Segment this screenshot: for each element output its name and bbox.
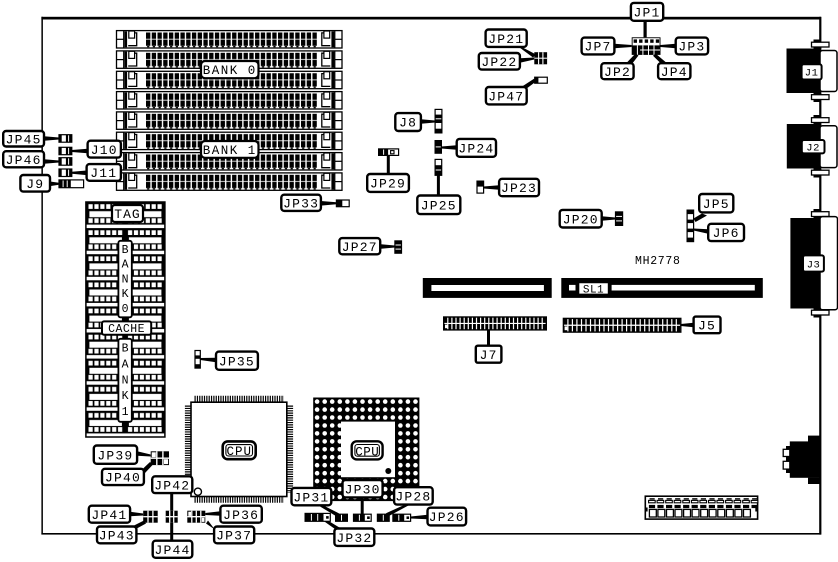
- svg-text:JP45: JP45: [6, 132, 42, 147]
- svg-text:JP6: JP6: [713, 226, 740, 241]
- svg-text:JP29: JP29: [370, 177, 406, 192]
- svg-text:JP39: JP39: [97, 448, 133, 463]
- svg-text:SL1: SL1: [583, 284, 604, 296]
- svg-text:JP4: JP4: [661, 65, 688, 80]
- svg-text:JP3: JP3: [678, 40, 705, 55]
- svg-text:JP33: JP33: [283, 197, 319, 212]
- svg-text:J3: J3: [807, 259, 821, 271]
- svg-text:CPU: CPU: [355, 445, 379, 459]
- svg-text:BANK 0: BANK 0: [203, 64, 257, 78]
- svg-text:JP35: JP35: [219, 354, 255, 369]
- svg-text:JP42: JP42: [154, 478, 190, 493]
- svg-text:J7: J7: [480, 348, 498, 363]
- svg-text:J11: J11: [90, 166, 117, 181]
- svg-text:TAG: TAG: [114, 207, 140, 222]
- svg-text:JP30: JP30: [345, 482, 381, 497]
- svg-text:B: B: [122, 244, 129, 257]
- svg-text:JP21: JP21: [488, 32, 524, 47]
- svg-text:B: B: [122, 343, 129, 356]
- svg-text:JP44: JP44: [154, 543, 190, 558]
- svg-text:JP1: JP1: [633, 6, 660, 21]
- svg-text:JP22: JP22: [481, 55, 517, 70]
- svg-text:J9: J9: [26, 177, 44, 192]
- svg-text:J10: J10: [91, 143, 118, 158]
- svg-text:J2: J2: [806, 143, 820, 155]
- svg-text:JP47: JP47: [488, 89, 524, 104]
- svg-text:BANK 1: BANK 1: [203, 144, 257, 158]
- svg-text:J8: J8: [399, 116, 417, 131]
- svg-text:JP37: JP37: [216, 529, 252, 544]
- svg-text:0: 0: [122, 303, 129, 316]
- svg-text:JP20: JP20: [563, 212, 599, 227]
- svg-text:JP41: JP41: [91, 508, 127, 523]
- svg-text:JP28: JP28: [395, 490, 431, 505]
- svg-text:JP43: JP43: [99, 529, 135, 544]
- svg-text:MH2778: MH2778: [635, 255, 681, 268]
- svg-text:JP46: JP46: [6, 153, 42, 168]
- svg-text:J1: J1: [805, 68, 819, 80]
- svg-text:K: K: [122, 288, 129, 301]
- svg-text:JP36: JP36: [223, 508, 259, 523]
- svg-text:J5: J5: [698, 319, 716, 334]
- svg-text:JP24: JP24: [458, 142, 494, 157]
- svg-text:1: 1: [122, 406, 129, 419]
- svg-text:JP32: JP32: [336, 531, 372, 546]
- svg-text:CACHE: CACHE: [108, 323, 145, 336]
- svg-text:JP31: JP31: [293, 490, 329, 505]
- svg-text:JP25: JP25: [421, 199, 457, 214]
- svg-text:CPU: CPU: [226, 445, 252, 459]
- svg-text:JP27: JP27: [342, 240, 378, 255]
- svg-text:JP7: JP7: [584, 40, 611, 55]
- svg-text:JP23: JP23: [501, 181, 537, 196]
- svg-text:JP26: JP26: [429, 510, 465, 525]
- svg-text:N: N: [122, 374, 129, 387]
- svg-text:JP2: JP2: [604, 65, 631, 80]
- svg-text:JP5: JP5: [703, 197, 730, 212]
- svg-text:K: K: [122, 390, 129, 403]
- svg-text:JP40: JP40: [105, 471, 141, 486]
- svg-text:N: N: [122, 273, 129, 286]
- svg-text:A: A: [122, 259, 129, 272]
- svg-text:A: A: [122, 358, 129, 371]
